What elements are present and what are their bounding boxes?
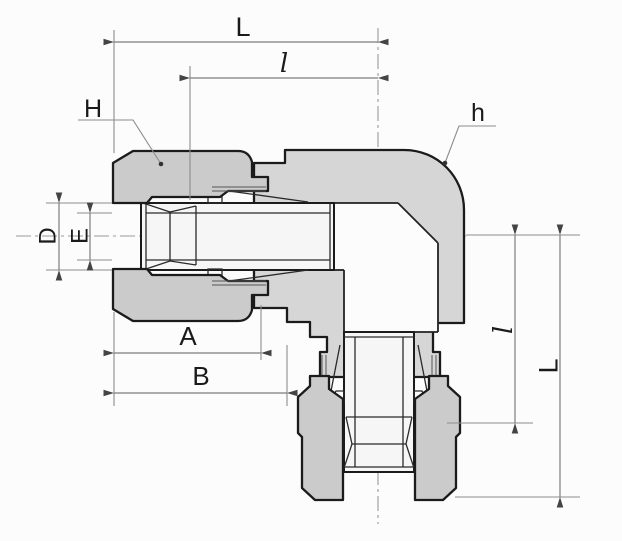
elbow-fitting-section-drawing: L l H h D E A B l L <box>0 0 622 541</box>
dimension-L-right: L <box>533 235 563 497</box>
dimension-l-top: l <box>190 49 378 79</box>
vertical-port <box>298 332 460 500</box>
bottom-nut-left-section <box>298 376 343 500</box>
dimension-L-top: L <box>114 12 378 42</box>
dimension-E: E <box>66 213 93 260</box>
dim-label-H: H <box>84 95 102 123</box>
dimension-D: D <box>34 203 61 270</box>
callout-h: h <box>443 99 496 165</box>
dimension-A: A <box>114 321 261 353</box>
dim-label-D: D <box>34 227 61 244</box>
dim-label-L-top: L <box>235 12 250 42</box>
bottom-nut-right-section <box>415 376 460 500</box>
vertical-tube <box>344 332 414 472</box>
leader-dot-H <box>159 162 164 167</box>
dim-label-E: E <box>66 228 93 244</box>
leader-dot-h <box>443 161 448 166</box>
drawing-canvas: L l H h D E A B l L <box>0 0 622 541</box>
dim-label-A: A <box>179 321 197 351</box>
dim-label-h: h <box>471 99 485 127</box>
dim-label-l-top: l <box>280 49 288 79</box>
dimension-B: B <box>114 361 287 393</box>
left-nut-lower-section <box>113 269 268 321</box>
dimension-l-right: l <box>489 235 519 423</box>
dim-label-B: B <box>192 361 209 391</box>
dim-label-l-right: l <box>489 326 519 334</box>
dim-label-L-right: L <box>533 358 563 373</box>
